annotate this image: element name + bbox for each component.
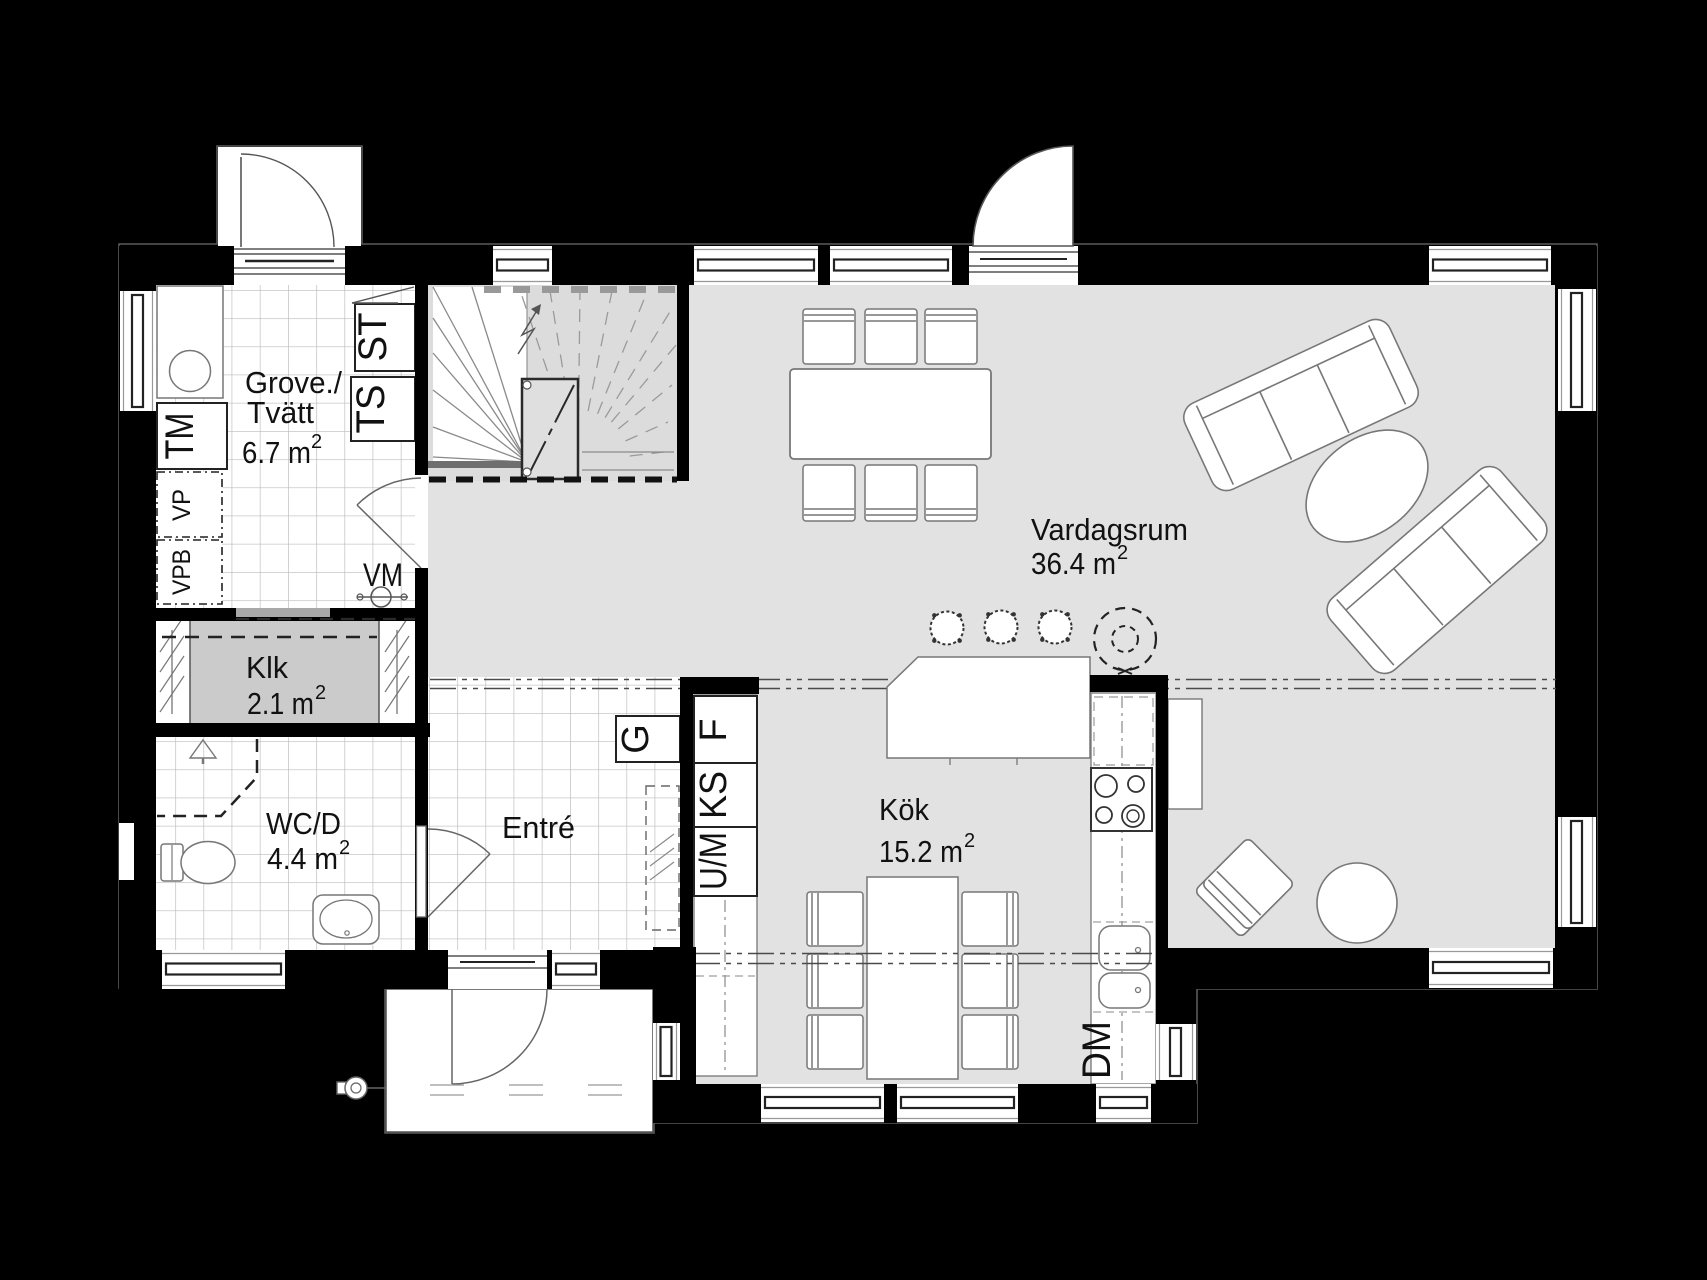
svg-text:Klk: Klk xyxy=(246,650,288,685)
svg-text:VM: VM xyxy=(363,557,403,593)
svg-text:KS: KS xyxy=(693,771,735,819)
svg-text:Entré: Entré xyxy=(502,810,575,845)
svg-text:2: 2 xyxy=(964,830,975,852)
svg-text:2.1 m: 2.1 m xyxy=(247,686,314,721)
svg-text:2: 2 xyxy=(339,837,350,859)
svg-text:VP: VP xyxy=(168,489,196,521)
svg-text:F: F xyxy=(693,718,735,741)
svg-text:G: G xyxy=(615,724,657,754)
svg-text:ST: ST xyxy=(351,313,395,362)
svg-text:6.7 m: 6.7 m xyxy=(242,435,311,470)
svg-text:U/M: U/M xyxy=(693,832,735,890)
svg-text:2: 2 xyxy=(311,431,322,453)
svg-text:Kök: Kök xyxy=(879,792,929,827)
svg-text:DM: DM xyxy=(1075,1021,1119,1079)
svg-text:2: 2 xyxy=(1117,542,1128,564)
svg-text:2: 2 xyxy=(315,682,326,704)
svg-text:Tvätt: Tvätt xyxy=(247,395,314,430)
svg-text:Vardagsrum: Vardagsrum xyxy=(1031,512,1188,547)
svg-text:VPB: VPB xyxy=(168,549,196,595)
svg-text:WC/D: WC/D xyxy=(266,806,341,841)
svg-text:36.4 m: 36.4 m xyxy=(1031,546,1116,581)
svg-text:TM: TM xyxy=(158,413,202,460)
svg-text:4.4 m: 4.4 m xyxy=(267,841,338,876)
svg-text:15.2 m: 15.2 m xyxy=(879,834,963,869)
svg-text:TS: TS xyxy=(349,385,393,434)
